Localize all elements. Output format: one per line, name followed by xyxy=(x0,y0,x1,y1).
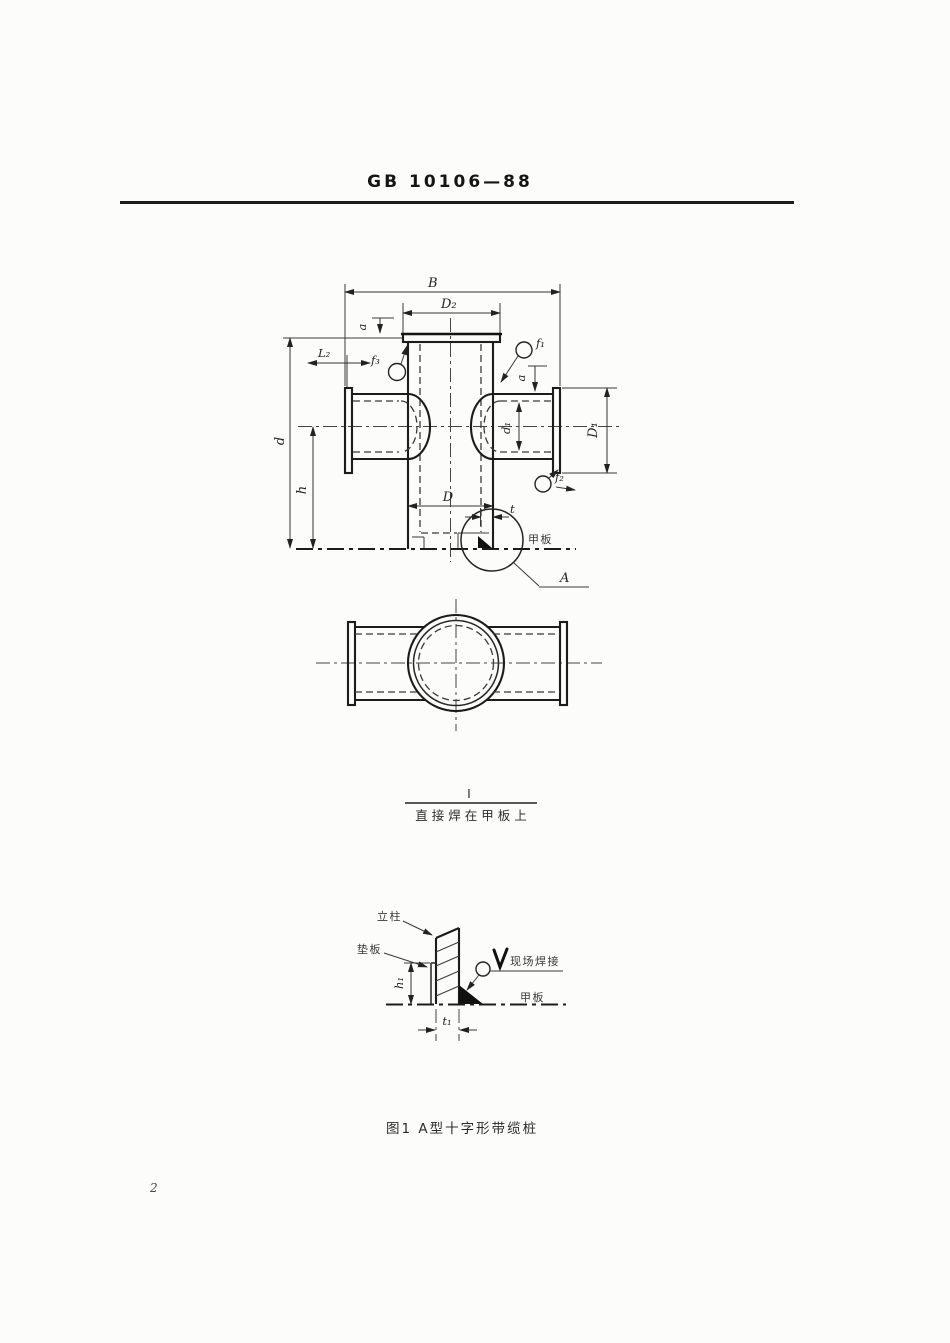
field-weld-note: 现场焊接 xyxy=(510,954,560,968)
dim-label-f1: f₁ xyxy=(535,336,545,350)
field-weld-flag-icon xyxy=(494,949,507,967)
variant-denominator: 直接焊在甲板上 xyxy=(415,808,531,823)
weld-balloon-f1 xyxy=(516,342,532,358)
dim-label-h1: h₁ xyxy=(392,977,406,989)
column-label: 立柱 xyxy=(377,909,402,923)
page-number: 2 xyxy=(150,1181,158,1195)
dim-label-D2: D₂ xyxy=(440,297,457,312)
front-view-dimensions: B D₂ a L₂ f₃ f₁ a xyxy=(273,276,617,548)
dim-label-D: D xyxy=(442,490,454,505)
dim-label-B: B xyxy=(427,276,438,291)
dim-label-t: t xyxy=(510,502,515,516)
variant-numerator: Ⅰ xyxy=(467,786,475,801)
dim-label-f3: f₃ xyxy=(370,353,380,367)
dim-label-a-right: a xyxy=(514,374,528,381)
fillet-weld xyxy=(459,985,483,1004)
dim-label-h: h xyxy=(295,486,310,494)
detail-ref-label: A xyxy=(559,571,569,586)
deck-label-detail: 甲板 xyxy=(520,990,545,1004)
scanned-standard-page: GB 10106—88 xyxy=(0,0,950,1343)
dim-label-D1: D₁ xyxy=(586,422,601,439)
top-view xyxy=(316,599,602,731)
variant-note: Ⅰ 直接焊在甲板上 xyxy=(405,786,537,823)
figure-drawings: A 甲板 B D₂ a L₂ f₃ xyxy=(0,0,950,1343)
dim-label-L2: L₂ xyxy=(317,346,331,360)
dim-label-d1: d₁ xyxy=(499,422,513,434)
pad-label: 垫板 xyxy=(357,942,382,956)
dim-label-f2: f₂ xyxy=(554,470,564,484)
weld-all-around-symbol xyxy=(476,962,490,976)
dim-label-t1: t₁ xyxy=(442,1014,451,1028)
dim-label-d: d xyxy=(273,437,288,445)
weld-balloon-f2 xyxy=(535,476,551,492)
figure-caption: 图1 A型十字形带缆桩 xyxy=(386,1117,538,1137)
detail-view: 甲板 t₁ h₁ 立柱 垫板 现场焊接 xyxy=(357,909,566,1041)
weld-balloon-f3 xyxy=(389,364,406,381)
base-weld xyxy=(478,536,492,548)
dim-label-a-left: a xyxy=(355,323,369,330)
deck-label-front: 甲板 xyxy=(528,532,553,546)
